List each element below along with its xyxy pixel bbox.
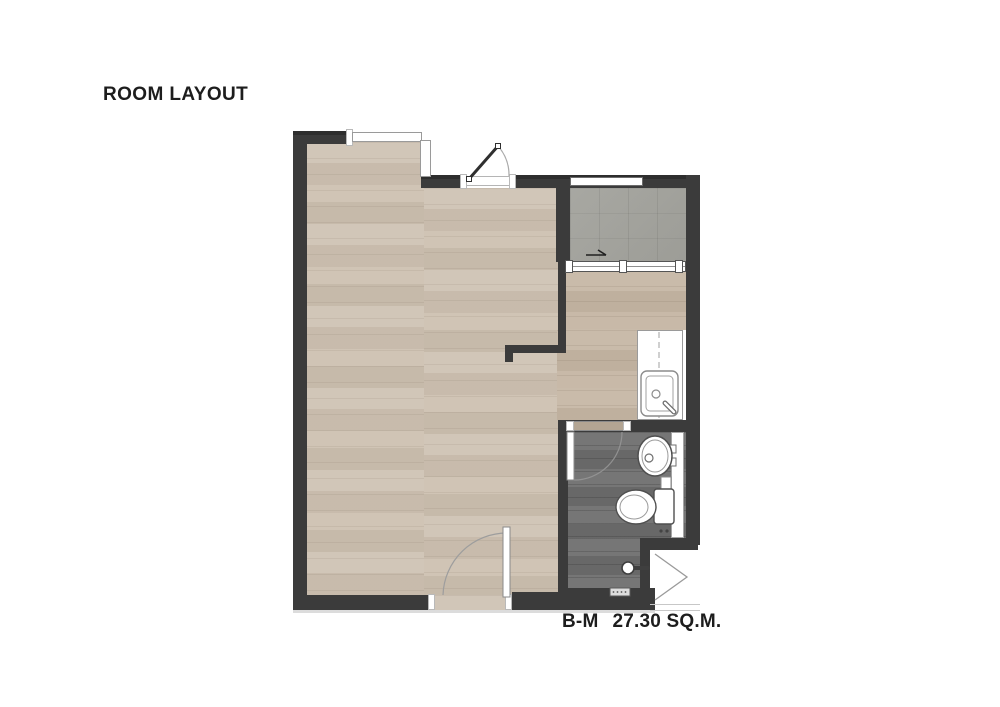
- page-title: ROOM LAYOUT: [103, 84, 248, 106]
- wall-ac-ledge-top: [648, 538, 698, 550]
- living-area-floor-right: [424, 188, 560, 595]
- window-top: [352, 132, 422, 142]
- bathroom-shower-floor: [568, 538, 640, 590]
- living-area-floor: [307, 142, 424, 595]
- ac-unit-triangle-icon: [655, 554, 687, 600]
- wall-interior-vertical: [558, 262, 566, 353]
- wall-interior-horizontal: [505, 345, 566, 353]
- wall-left: [293, 131, 307, 610]
- wall-right: [686, 175, 700, 545]
- kitchen-floor-lower: [557, 330, 637, 420]
- area-label: B-M 27.30 SQ.M.: [562, 611, 721, 633]
- wall-balcony-left: [556, 181, 570, 262]
- sliding-door-handle-left: [565, 260, 573, 273]
- balcony-floor: [570, 188, 686, 262]
- unit-area: 27.30 SQ.M.: [612, 611, 721, 633]
- door-threshold: [466, 176, 510, 186]
- wall-ac-ledge-left: [640, 538, 650, 608]
- wall-bottom-mid: [512, 592, 558, 610]
- balcony-window: [570, 177, 643, 186]
- ledge-edge-line: [650, 604, 700, 605]
- wall-interior-stub: [505, 353, 513, 362]
- bathroom-door-opening: [574, 421, 623, 431]
- sliding-door-handle-center: [619, 260, 627, 273]
- wall-bathroom-left: [558, 432, 568, 610]
- bathroom-floor: [568, 432, 686, 538]
- floor-plan-canvas: ROOM LAYOUT: [0, 0, 1000, 707]
- kitchen-floor: [566, 271, 686, 330]
- wall-bottom-left: [293, 595, 435, 610]
- kitchen-counter: [637, 330, 683, 420]
- wall-top-left: [293, 131, 353, 144]
- bathroom-door-jamb-left: [566, 421, 574, 431]
- entrance-doorway-floor: [435, 595, 505, 610]
- bathroom-door-jamb-right: [623, 421, 631, 431]
- window-corner-vertical: [420, 140, 431, 177]
- unit-code: B-M: [562, 611, 598, 633]
- bathroom-vanity-strip: [671, 432, 684, 538]
- door-jamb-right: [509, 174, 516, 189]
- sliding-door-handle-right: [675, 260, 683, 273]
- entrance-jamb-left: [428, 594, 435, 610]
- entrance-jamb-right: [505, 594, 512, 610]
